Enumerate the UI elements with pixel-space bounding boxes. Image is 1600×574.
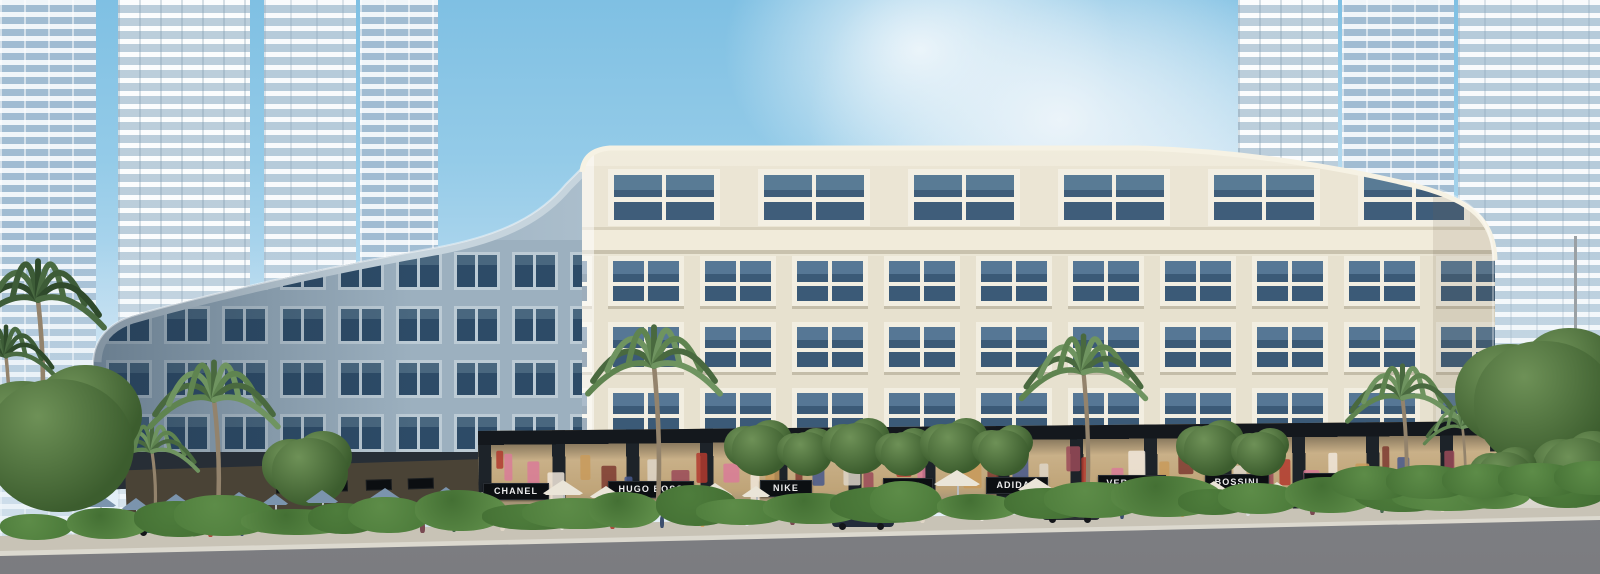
- shop-display: [496, 451, 503, 469]
- hedge-bush: [0, 514, 72, 540]
- leafy-tree: [1237, 432, 1286, 476]
- small-sign-board: [366, 479, 392, 491]
- rendered-scene: CHANELHUGO BOSSNIKEDIORADIDASVERSACEBOSS…: [0, 0, 1600, 574]
- umbrella-pole: [957, 486, 959, 495]
- shop-display: [504, 454, 512, 481]
- hedge-bush: [870, 481, 942, 522]
- small-sign-board: [408, 478, 434, 490]
- hedge-bush: [589, 492, 661, 528]
- leafy-tree: [978, 430, 1029, 476]
- leafy-tree: [272, 438, 348, 506]
- car-wheel: [877, 523, 884, 530]
